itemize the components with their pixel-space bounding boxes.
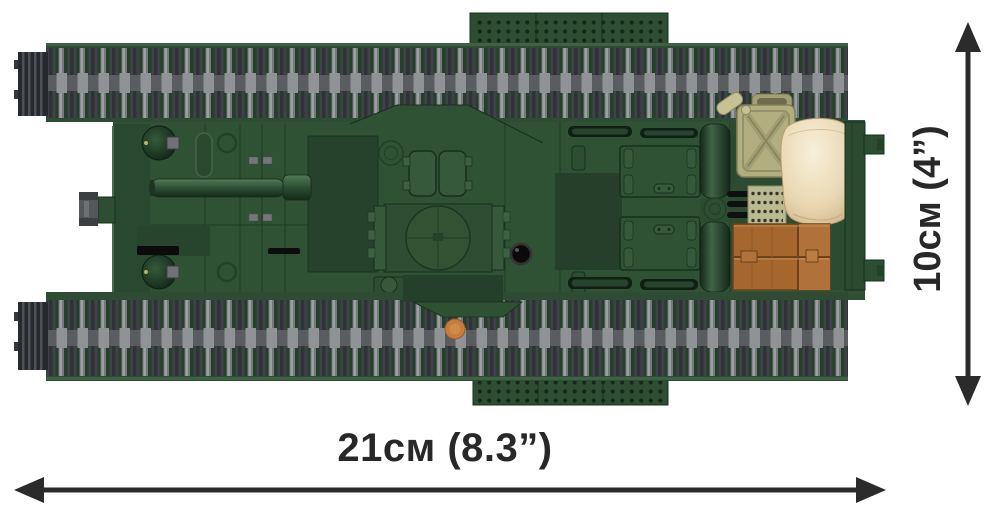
figure: 21см (8.3”) 10см (4”) — [0, 0, 1000, 511]
orange-stud — [445, 319, 465, 339]
brand-stamp — [379, 141, 403, 165]
engine-hatch-bottom — [620, 217, 700, 270]
tow-hook-top — [864, 135, 884, 154]
width-label: 21см (8.3”) — [195, 426, 695, 471]
hull-gun-mount — [79, 192, 115, 226]
wooden-crates — [733, 224, 830, 290]
gun-barrel — [149, 175, 311, 200]
rear-cylinders — [700, 124, 730, 292]
arrowhead-up — [955, 22, 981, 52]
rear-plate — [845, 122, 865, 290]
stowage-plate-top — [470, 13, 668, 45]
perforated-plate — [748, 186, 786, 226]
height-label: 10см (4”) — [907, 59, 949, 359]
arrowhead-left — [14, 477, 44, 503]
width-arrow — [14, 477, 886, 503]
turret-ring — [368, 204, 510, 272]
tow-hook-bottom — [864, 260, 884, 281]
vision-slit — [137, 246, 179, 255]
periscope — [511, 244, 531, 264]
height-arrow — [955, 22, 981, 406]
arrowhead-down — [955, 376, 981, 406]
sandbag — [781, 118, 853, 225]
engine-hatch-top — [620, 146, 700, 197]
arrowhead-right — [856, 477, 886, 503]
